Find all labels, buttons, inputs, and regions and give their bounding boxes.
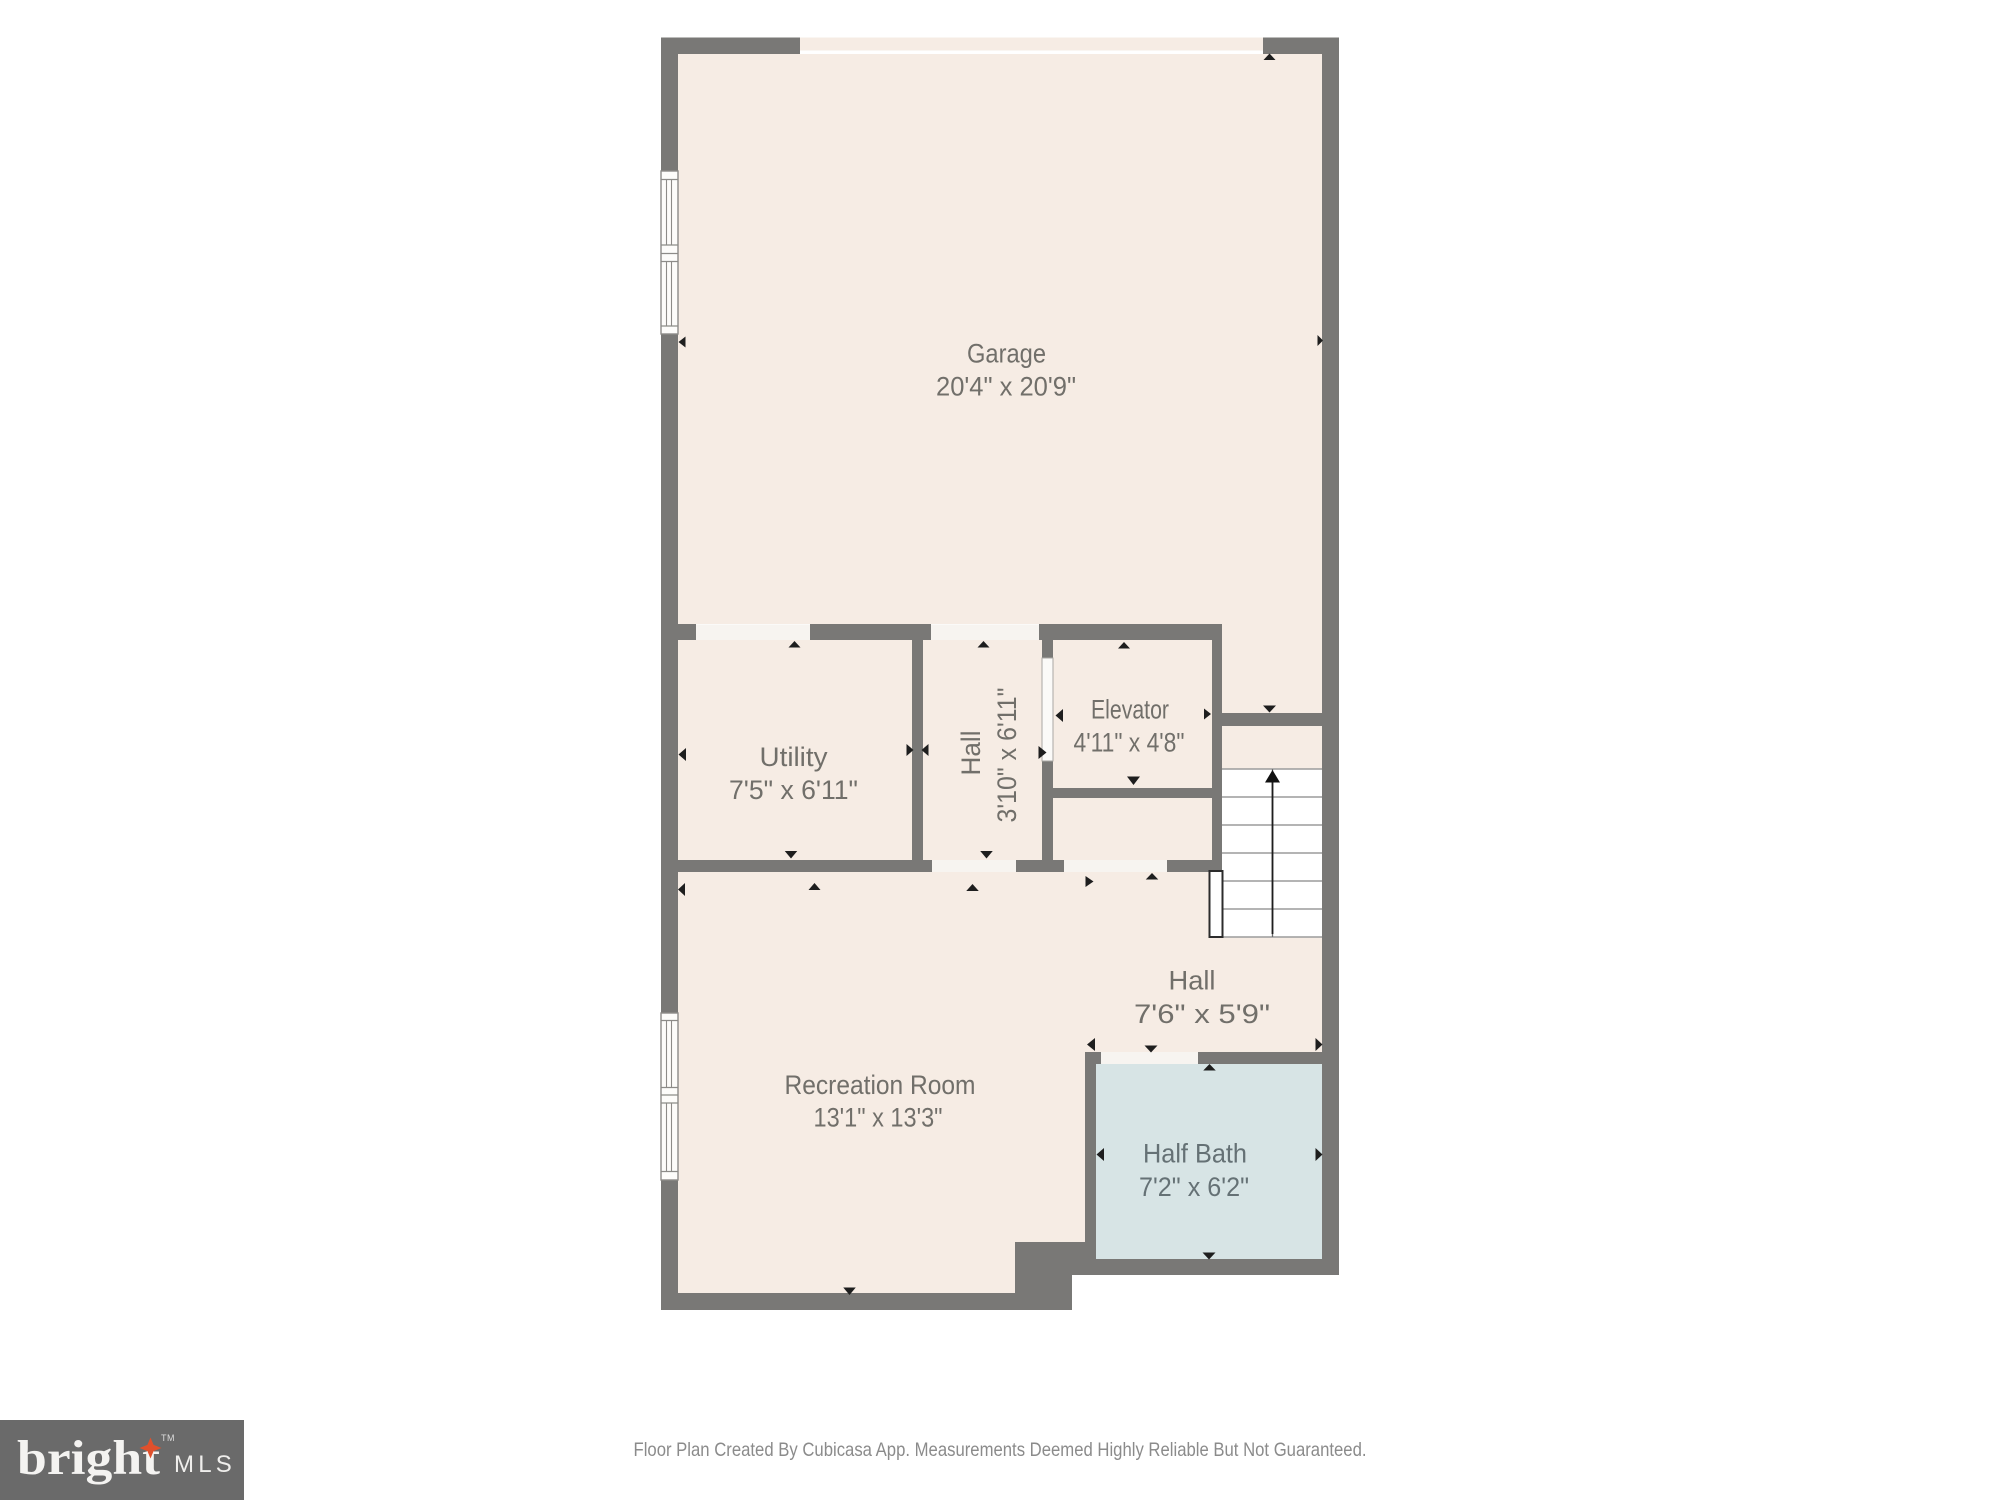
svg-text:7'6" x 5'9": 7'6" x 5'9"	[1134, 999, 1270, 1029]
svg-text:Hall: Hall	[1169, 966, 1216, 996]
svg-text:7'5" x 6'11": 7'5" x 6'11"	[729, 775, 858, 805]
svg-text:4'11" x 4'8": 4'11" x 4'8"	[1074, 728, 1185, 758]
svg-text:3'10" x 6'11": 3'10" x 6'11"	[992, 688, 1022, 823]
svg-text:Garage: Garage	[967, 339, 1046, 369]
svg-text:TM: TM	[161, 1433, 175, 1443]
svg-text:Elevator: Elevator	[1091, 695, 1169, 725]
svg-text:Recreation Room: Recreation Room	[785, 1070, 976, 1100]
svg-text:Utility: Utility	[760, 742, 829, 772]
svg-text:Half Bath: Half Bath	[1143, 1139, 1247, 1169]
svg-text:20'4" x 20'9": 20'4" x 20'9"	[936, 372, 1076, 402]
svg-text:Floor Plan Created By Cubicasa: Floor Plan Created By Cubicasa App. Meas…	[634, 1439, 1367, 1461]
svg-text:7'2" x 6'2": 7'2" x 6'2"	[1139, 1172, 1249, 1202]
svg-text:Hall: Hall	[956, 731, 986, 776]
svg-text:13'1" x 13'3": 13'1" x 13'3"	[814, 1103, 943, 1133]
svg-text:bright: bright	[17, 1430, 161, 1485]
svg-text:MLS: MLS	[174, 1451, 236, 1478]
